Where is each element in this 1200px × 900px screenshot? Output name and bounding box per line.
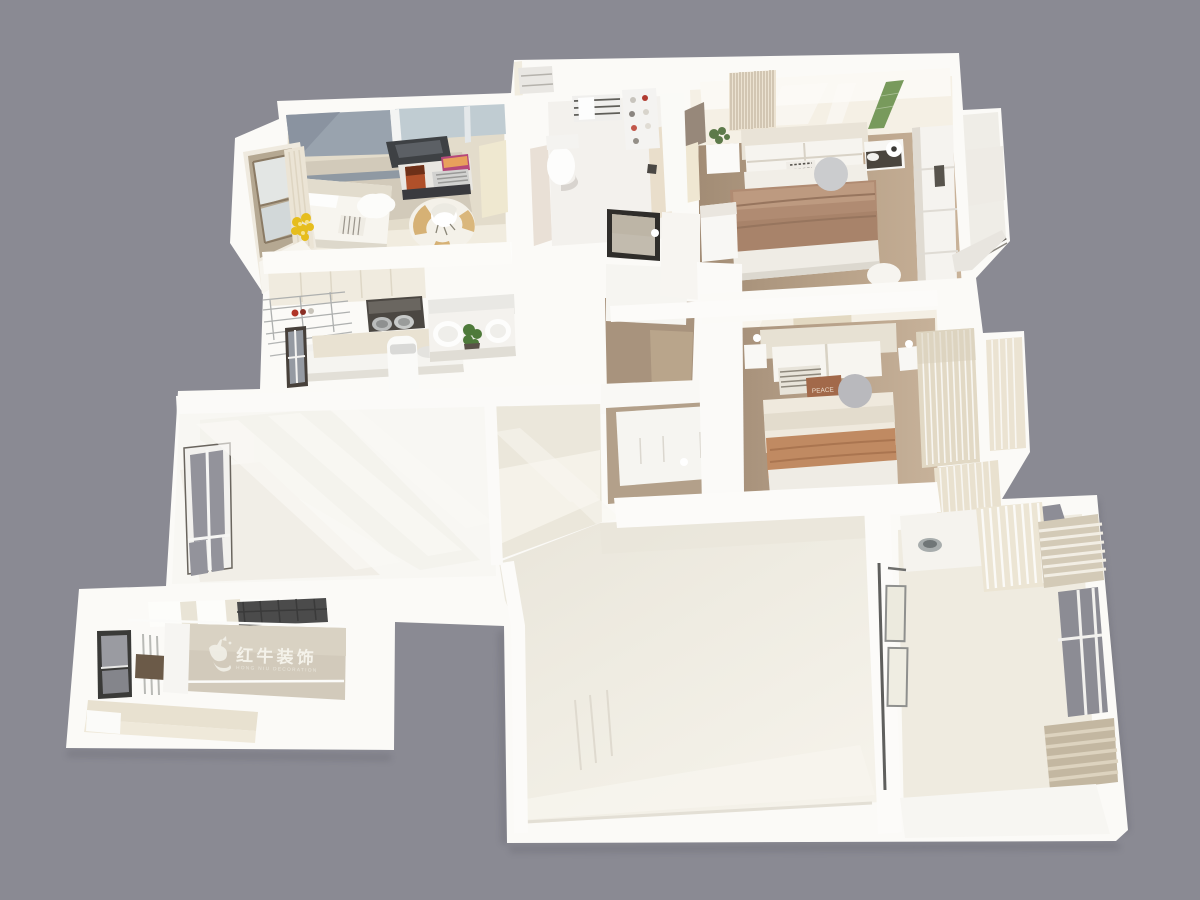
svg-text:红牛装饰: 红牛装饰 (236, 645, 317, 668)
